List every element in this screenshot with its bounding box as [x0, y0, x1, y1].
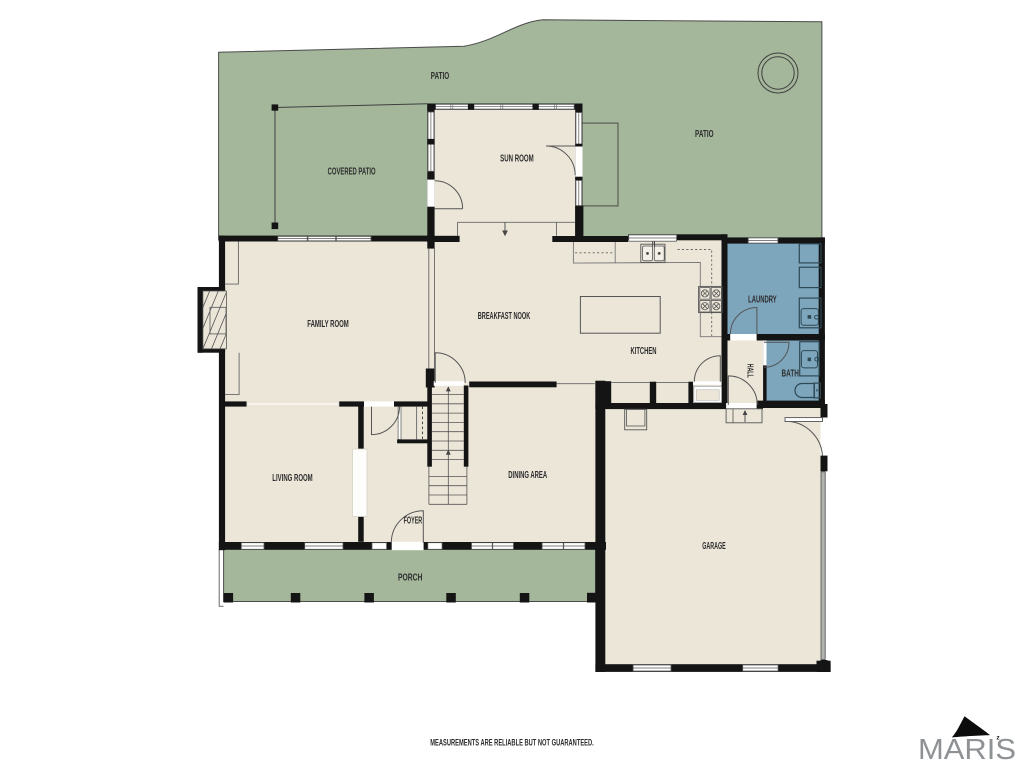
- svg-text:KITCHEN: KITCHEN: [631, 346, 657, 357]
- svg-text:DINING AREA: DINING AREA: [508, 470, 547, 481]
- svg-text:HALL: HALL: [746, 364, 756, 378]
- svg-text:PORCH: PORCH: [398, 573, 423, 584]
- svg-text:LAUNDRY: LAUNDRY: [748, 294, 777, 305]
- svg-text:PATIO: PATIO: [695, 129, 714, 140]
- svg-text:GARAGE: GARAGE: [702, 541, 726, 552]
- svg-text:LIVING ROOM: LIVING ROOM: [272, 473, 312, 484]
- svg-text:FOYER: FOYER: [404, 516, 423, 527]
- svg-text:COVERED PATIO: COVERED PATIO: [328, 167, 376, 178]
- svg-text:PATIO: PATIO: [431, 71, 450, 82]
- svg-text:MARIS: MARIS: [918, 734, 1016, 766]
- svg-text:MEASUREMENTS ARE RELIABLE BUT: MEASUREMENTS ARE RELIABLE BUT NOT GUARAN…: [430, 737, 594, 747]
- svg-text:SUN ROOM: SUN ROOM: [500, 153, 534, 164]
- svg-text:BREAKFAST NOOK: BREAKFAST NOOK: [478, 311, 531, 322]
- svg-text:FAMILY ROOM: FAMILY ROOM: [307, 319, 349, 330]
- svg-text:BATH: BATH: [782, 368, 799, 379]
